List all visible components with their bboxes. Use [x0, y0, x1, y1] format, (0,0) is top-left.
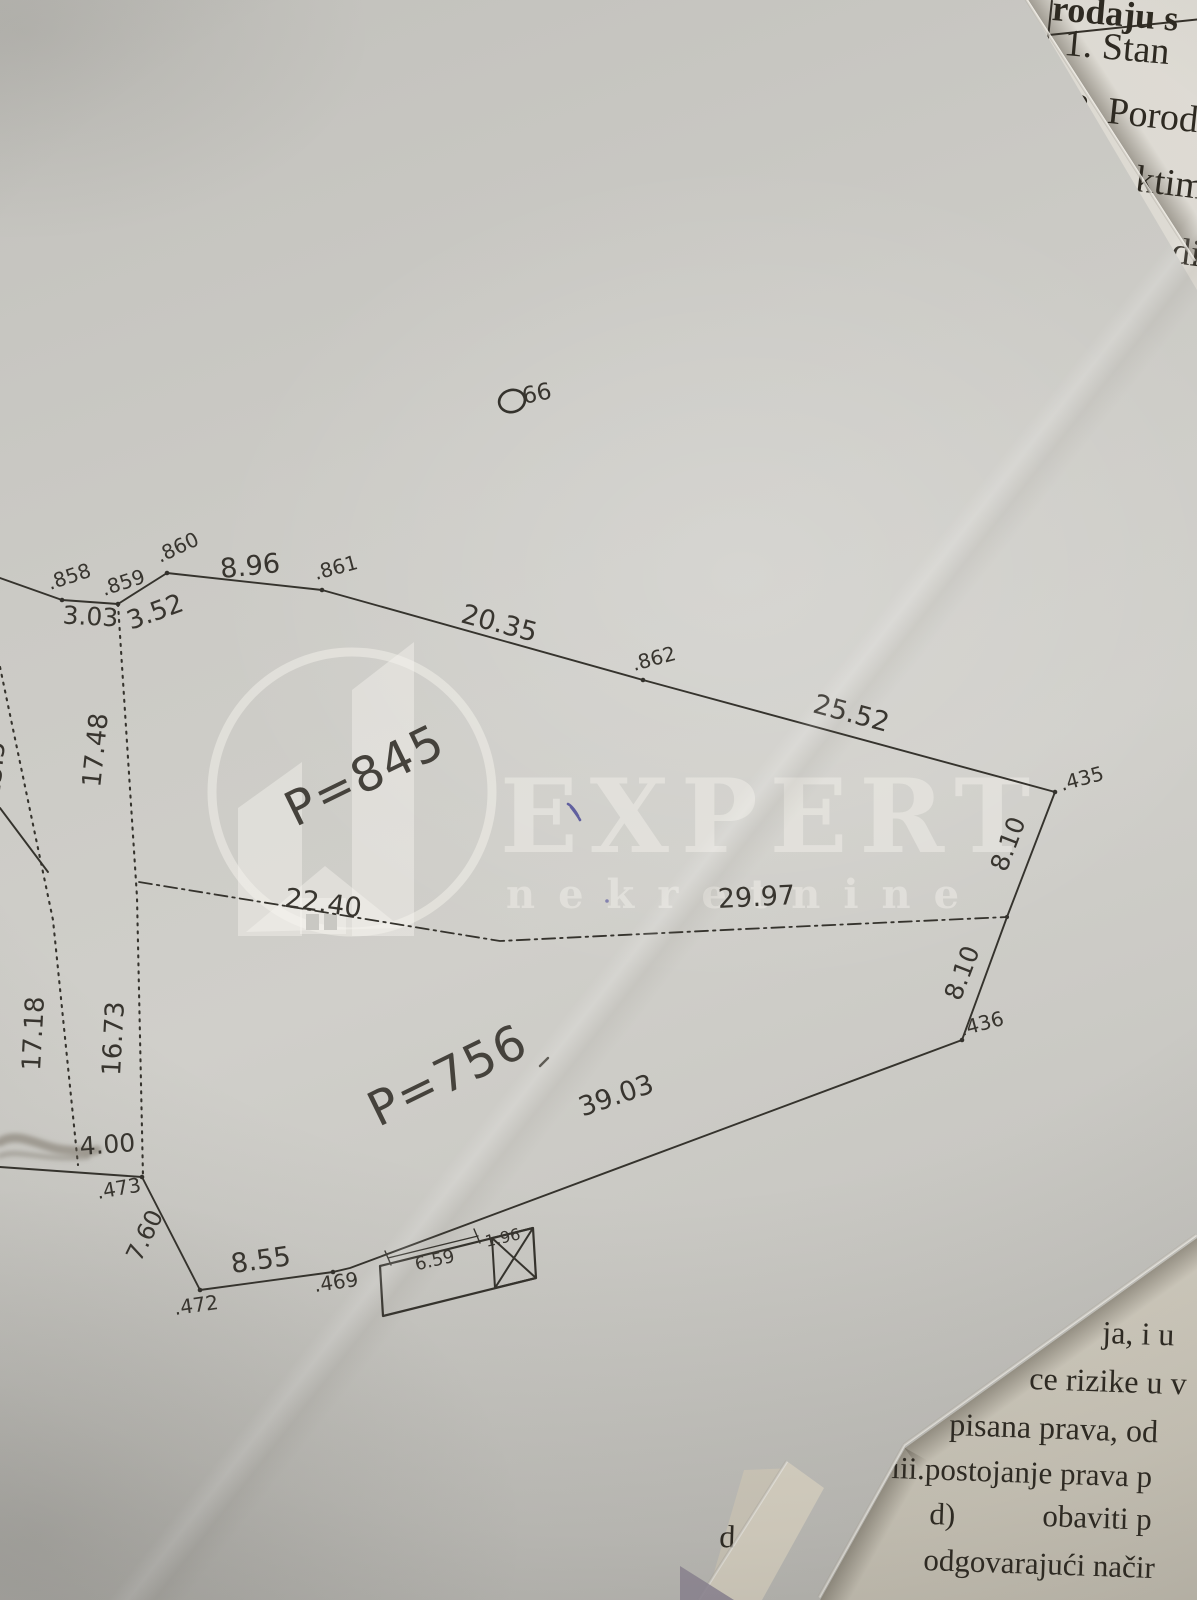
doc-line-5-text: obaviti p [1042, 1500, 1152, 1535]
dim-17-18: 17.18 [17, 996, 51, 1072]
dim-25-52: 25.52 [810, 689, 893, 739]
doc-line-6: odgovarajući načir [923, 1544, 1155, 1583]
doc-line-1: ja, i u [1102, 1316, 1175, 1350]
point-472: .472 [172, 1290, 219, 1320]
doc-line-3: pisana prava, od [949, 1408, 1159, 1447]
point-859: .859 [98, 564, 148, 601]
point-469: .469 [312, 1267, 359, 1297]
dim-7-60: 7.60 [121, 1205, 170, 1265]
dim-8-96: 8.96 [219, 548, 282, 585]
dim-left-partial: 15.5 [0, 740, 12, 801]
dim-1-96: 1.96 [483, 1224, 522, 1251]
photographed-survey-plan: EXPERT nekretnine [0, 0, 1197, 1600]
area-label-lower: P=756 [359, 1013, 537, 1138]
pencil-tick [540, 1058, 548, 1066]
doc-list-item-1: 1. Stan [1063, 24, 1171, 71]
dim-16-73: 16.73 [97, 1001, 131, 1077]
dim-4-00: 4.00 [79, 1128, 137, 1161]
left-dotted-line-1718 [0, 667, 78, 1165]
dim-39-03: 39.03 [575, 1069, 658, 1123]
dim-3-03: 3.03 [62, 601, 119, 633]
inner-dotted-line-1748-1673 [118, 604, 143, 1177]
point-473: .473 [95, 1173, 143, 1204]
left-edge-short-line [0, 808, 48, 872]
point-435: .435 [1057, 761, 1106, 796]
doc-line-5-marker: d) [929, 1498, 956, 1530]
dim-29-97: 29.97 [717, 880, 796, 915]
survey-point-dots [60, 571, 1058, 1293]
doc-line-4: iii.postojanje prava p [891, 1452, 1153, 1492]
doc-line-2: ce rizike u v [1029, 1362, 1187, 1399]
point-861: .861 [311, 550, 360, 585]
point-858: .858 [44, 558, 94, 595]
point-860: .860 [152, 527, 203, 568]
watermark-brand: EXPERT [500, 757, 1042, 877]
dim-8-55: 8.55 [229, 1241, 293, 1280]
point-436: .436 [957, 1006, 1006, 1041]
dim-17-48: 17.48 [77, 712, 115, 789]
parcel-boundary-line [0, 573, 1055, 1290]
dim-20-35: 20.35 [458, 599, 541, 649]
manhole-number: 66 [520, 378, 554, 410]
point-862: .862 [629, 641, 678, 676]
